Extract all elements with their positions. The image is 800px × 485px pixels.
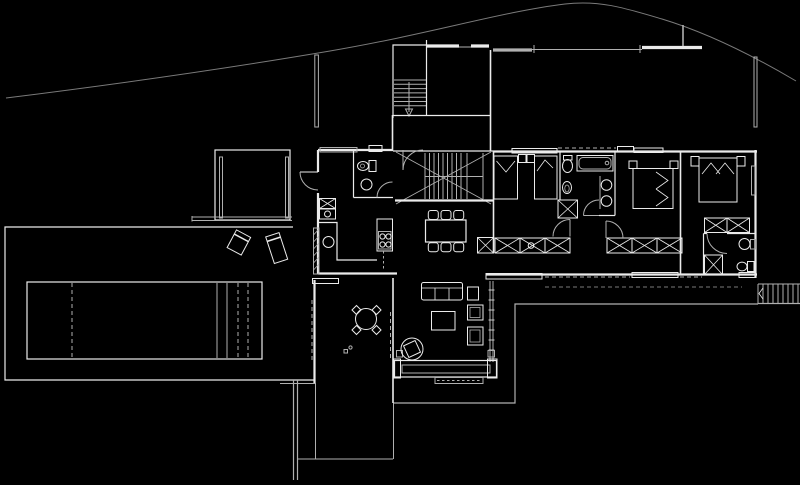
patio-chair xyxy=(352,306,361,315)
pool-deck xyxy=(5,227,315,384)
patio-chair xyxy=(372,306,381,315)
wardrobe-band-east xyxy=(607,238,682,253)
double-vanity xyxy=(600,176,612,209)
main-bathroom xyxy=(558,152,615,218)
lower-terrace xyxy=(393,284,800,403)
hall-closet xyxy=(478,238,494,254)
sink xyxy=(601,196,612,207)
bedroom3-closet xyxy=(705,218,750,233)
sofa xyxy=(422,283,463,301)
hall-north-door xyxy=(403,150,423,170)
interior-stair xyxy=(396,152,491,204)
swimming-pool xyxy=(27,282,262,359)
double-bed xyxy=(699,158,737,202)
carport-structure xyxy=(192,150,292,222)
carport-post xyxy=(220,157,223,218)
cad-canvas: house floor plan with pool, CAD line dra… xyxy=(0,0,800,485)
window-patio-sill xyxy=(313,279,339,284)
bath-closet xyxy=(558,200,578,218)
dining-chair xyxy=(441,243,451,252)
exterior-steps-east xyxy=(758,284,800,304)
round-table-set xyxy=(352,306,381,335)
patio xyxy=(312,280,381,383)
living-south-window xyxy=(394,351,498,384)
dining-chair xyxy=(428,211,438,220)
double-bed xyxy=(633,169,673,209)
bedroom2-door xyxy=(606,221,623,238)
dining-chair xyxy=(454,211,464,220)
bedroom1-door xyxy=(553,220,570,237)
upper-retaining-walls xyxy=(315,25,757,127)
bathtub xyxy=(577,156,613,172)
nightstand xyxy=(737,157,745,167)
northwest-wall xyxy=(315,55,319,127)
armchair xyxy=(468,327,484,345)
coffee-table xyxy=(432,312,456,331)
nightstand xyxy=(629,161,637,169)
floor-drain xyxy=(344,350,348,354)
nightstand xyxy=(527,155,535,163)
toilet xyxy=(563,156,573,173)
sink xyxy=(601,180,612,191)
carport-post xyxy=(286,157,289,218)
deck-lounge-chairs xyxy=(227,230,288,264)
single-bed xyxy=(494,156,518,199)
dining-chair xyxy=(428,243,438,252)
nightstand xyxy=(670,161,678,169)
exterior-stair-tower xyxy=(393,40,492,151)
armchair xyxy=(468,305,484,320)
living-room xyxy=(391,278,498,403)
toilet xyxy=(737,262,754,272)
terrain-contour-line xyxy=(6,3,796,98)
nightstand xyxy=(691,157,699,167)
kitchen-sink xyxy=(323,237,334,248)
steps-direction-arrow-icon xyxy=(759,288,763,299)
sink xyxy=(739,239,750,250)
floor-plan-drawing: house floor plan with pool, CAD line dra… xyxy=(0,0,800,485)
bidet xyxy=(563,182,572,194)
bedroom1 xyxy=(494,152,570,237)
laundry-units xyxy=(320,199,336,220)
door-swing xyxy=(377,182,393,198)
entry-door xyxy=(300,172,318,190)
dining-chair xyxy=(441,211,451,220)
bathroom-door xyxy=(584,200,600,216)
bedroom2 xyxy=(606,161,678,238)
side-table xyxy=(468,287,479,300)
stove xyxy=(379,232,392,250)
nightstand xyxy=(519,155,527,163)
kitchen xyxy=(319,219,393,271)
sink xyxy=(361,179,372,190)
ensuite-door-swing xyxy=(707,234,727,254)
dining-set xyxy=(426,211,467,252)
swivel-chair xyxy=(400,337,423,360)
dining-chair xyxy=(454,243,464,252)
powder-room xyxy=(354,151,394,198)
dining-table xyxy=(426,220,467,242)
garden-walkway xyxy=(294,380,394,480)
living-east-window-wall xyxy=(489,281,495,362)
ensuite-bathroom xyxy=(704,234,756,275)
toilet xyxy=(358,161,377,172)
wardrobe-band-west xyxy=(495,238,570,253)
single-bed xyxy=(535,156,558,199)
lounge-chaise xyxy=(266,233,288,264)
bedroom3 xyxy=(681,152,750,274)
lounge-chair xyxy=(227,230,251,255)
floor-drain xyxy=(349,346,352,349)
northeast-wall xyxy=(754,57,757,127)
shower xyxy=(705,255,723,275)
